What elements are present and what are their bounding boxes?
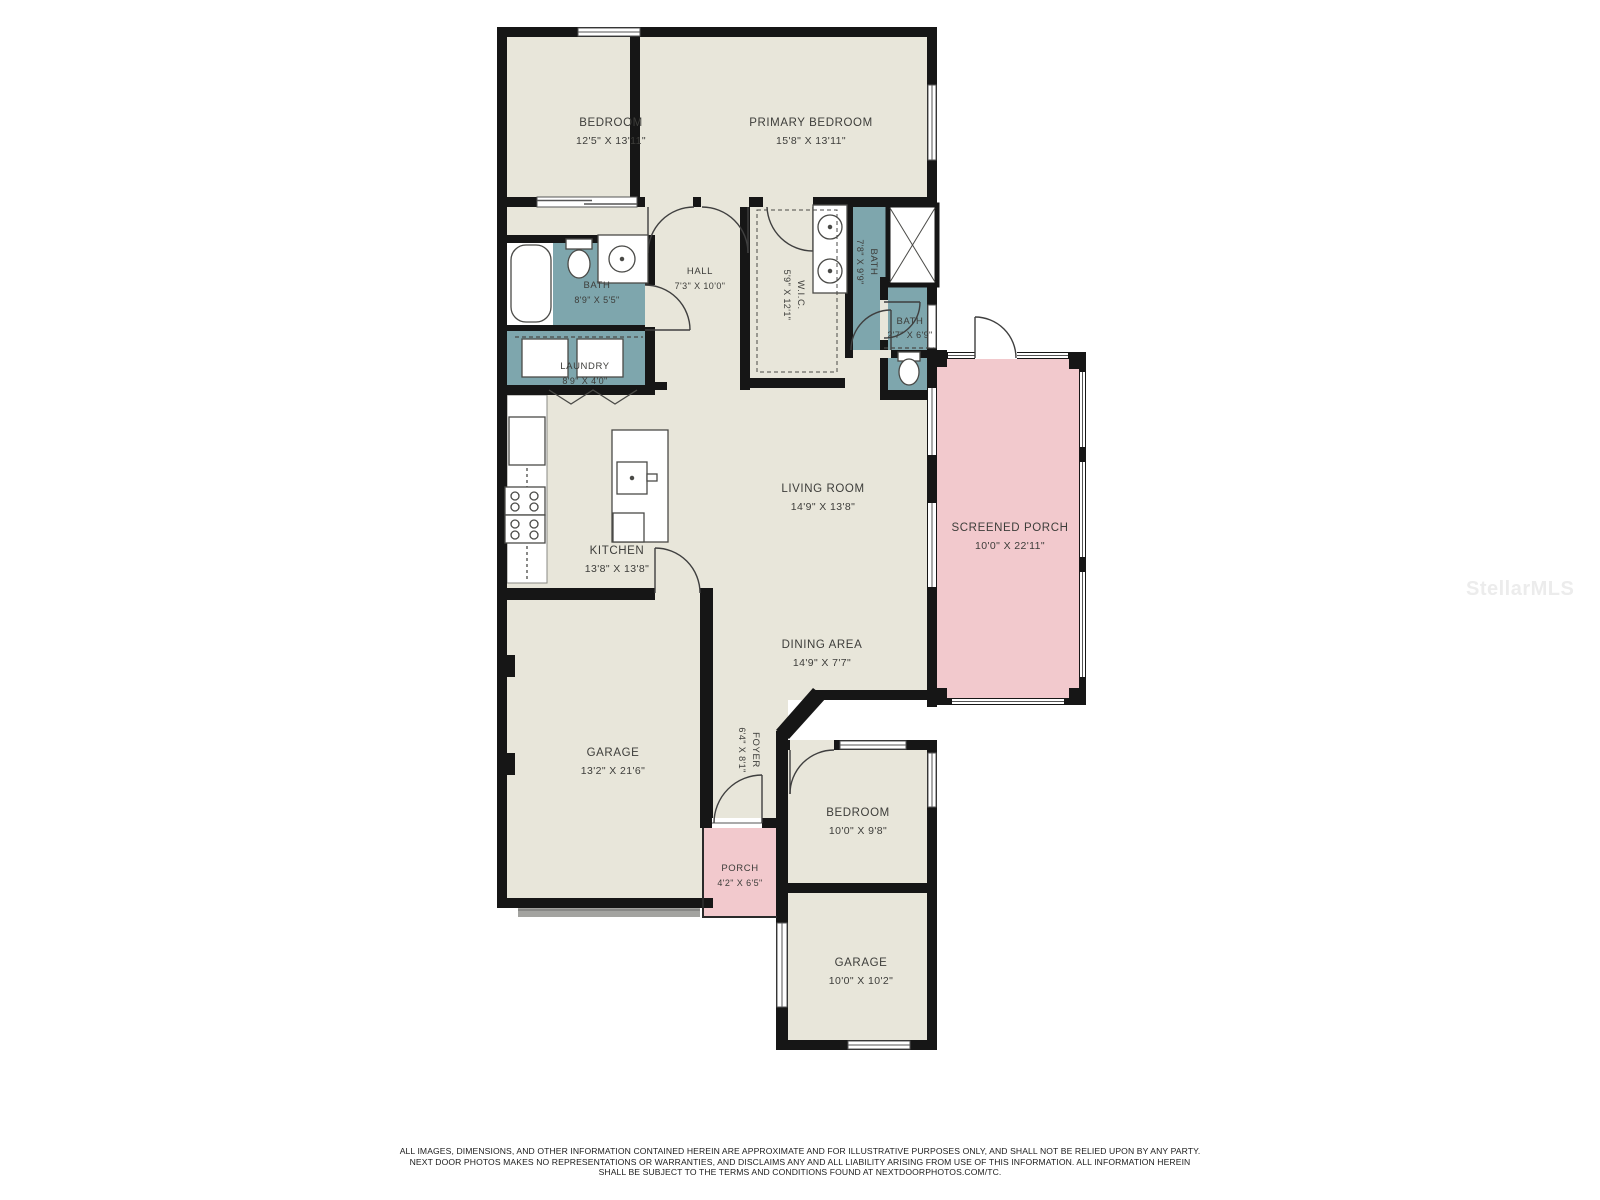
svg-text:KITCHEN: KITCHEN [590,545,645,557]
floor-plan-page: BEDROOM 12'5" X 13'11" PRIMARY BEDROOM 1… [0,0,1600,1200]
svg-text:2'7" X 6'9": 2'7" X 6'9" [887,330,932,340]
svg-text:LAUNDRY: LAUNDRY [560,361,609,372]
svg-text:PRIMARY BEDROOM: PRIMARY BEDROOM [749,117,873,129]
floor-plan-drawing: BEDROOM 12'5" X 13'11" PRIMARY BEDROOM 1… [0,0,1600,1200]
island-faucet [647,474,657,481]
stove-top [505,487,545,515]
svg-text:7'8" X 9'9": 7'8" X 9'9" [855,239,865,284]
svg-text:14'9" X 7'7": 14'9" X 7'7" [793,657,851,669]
svg-text:BATH: BATH [868,248,879,275]
disclaimer-line-1: ALL IMAGES, DIMENSIONS, AND OTHER INFORM… [0,1146,1600,1157]
svg-text:5'9" X 12'1": 5'9" X 12'1" [782,270,792,321]
svg-text:12'5" X 13'11": 12'5" X 13'11" [576,135,646,147]
svg-text:8'9" X 4'0": 8'9" X 4'0" [562,376,607,386]
svg-text:BEDROOM: BEDROOM [826,807,890,819]
svg-text:10'0" X 10'2": 10'0" X 10'2" [829,975,894,987]
disclaimer-line-3: SHALL BE SUBJECT TO THE TERMS AND CONDIT… [0,1167,1600,1178]
disclaimer-line-2: NEXT DOOR PHOTOS MAKES NO REPRESENTATION… [0,1157,1600,1168]
svg-text:15'8" X 13'11": 15'8" X 13'11" [776,135,846,147]
svg-text:13'2" X 21'6": 13'2" X 21'6" [581,765,646,777]
svg-text:GARAGE: GARAGE [587,747,640,759]
bedroom-2-garage-2-area [776,740,937,1050]
toilet-tank [566,239,592,249]
disclaimer: ALL IMAGES, DIMENSIONS, AND OTHER INFORM… [0,1146,1600,1178]
stove-bottom [505,515,545,543]
svg-text:LIVING ROOM: LIVING ROOM [781,483,864,495]
svg-text:4'2" X 6'5": 4'2" X 6'5" [717,878,762,888]
dishwasher [613,513,644,542]
stellar-mls-watermark: StellarMLS [1466,578,1574,601]
svg-text:10'0" X 9'8": 10'0" X 9'8" [829,825,887,837]
svg-text:10'0" X 22'11": 10'0" X 22'11" [975,540,1045,552]
svg-text:GARAGE: GARAGE [835,957,888,969]
toilet-bowl [568,250,590,278]
garage-1-door [518,908,700,917]
svg-text:DINING AREA: DINING AREA [782,639,863,651]
toilet-2-bowl [899,359,919,385]
svg-text:SCREENED PORCH: SCREENED PORCH [951,522,1068,534]
refrigerator [509,417,545,465]
bathtub [511,245,551,322]
svg-text:PORCH: PORCH [721,863,758,874]
svg-text:6'4" X 8'1": 6'4" X 8'1" [737,727,747,772]
svg-text:14'9" X 13'8": 14'9" X 13'8" [791,501,856,513]
svg-text:FOYER: FOYER [750,732,761,768]
svg-text:BEDROOM: BEDROOM [579,117,643,129]
svg-text:BATH: BATH [896,316,923,327]
room-areas [497,27,1086,1050]
svg-text:W.I.C.: W.I.C. [795,280,806,309]
svg-text:BATH: BATH [583,280,610,291]
svg-text:HALL: HALL [687,266,713,277]
svg-text:13'8" X 13'8": 13'8" X 13'8" [585,563,650,575]
svg-text:8'9" X 5'5": 8'9" X 5'5" [574,295,619,305]
svg-text:7'3" X 10'0": 7'3" X 10'0" [675,281,726,291]
